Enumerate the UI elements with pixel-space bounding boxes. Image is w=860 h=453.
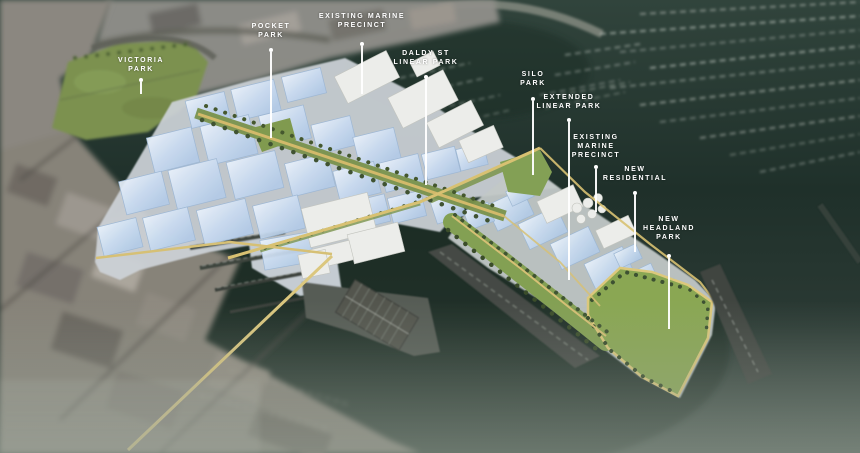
label-victoria-park-text: VICTORIA PARK xyxy=(118,56,164,74)
leader-line xyxy=(270,52,271,138)
label-new-headland-park: NEW HEADLAND PARK xyxy=(599,215,739,329)
label-new-headland-park-text: NEW HEADLAND PARK xyxy=(643,215,695,242)
label-silo-park-text: SILO PARK xyxy=(520,70,546,88)
label-existing-marine-precinct-east-text: EXISTING MARINE PRECINCT xyxy=(572,133,621,160)
label-victoria-park: VICTORIA PARK xyxy=(71,56,211,94)
label-pocket-park-text: POCKET PARK xyxy=(252,22,291,40)
label-new-residential-text: NEW RESIDENTIAL xyxy=(603,165,667,183)
label-extended-linear-park-text: EXTENDED LINEAR PARK xyxy=(537,93,602,111)
masterplan-aerial-view: VICTORIA PARK POCKET PARK EXISTING MARIN… xyxy=(0,0,860,453)
label-daldy-st-linear-park-text: DALDY ST LINEAR PARK xyxy=(394,49,459,67)
leader-line xyxy=(140,82,141,94)
leader-line xyxy=(668,258,669,329)
leader-line xyxy=(425,79,426,185)
label-existing-marine-precinct-west-text: EXISTING MARINE PRECINCT xyxy=(319,12,405,30)
